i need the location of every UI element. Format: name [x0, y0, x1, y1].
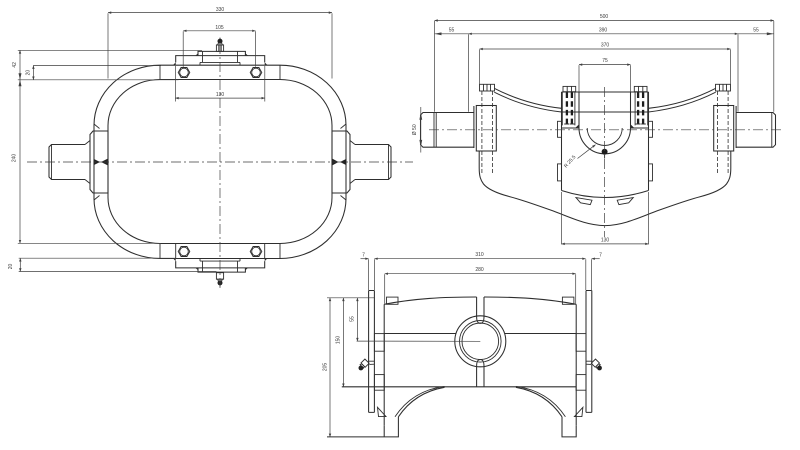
svg-text:Ø 50: Ø 50: [412, 124, 418, 135]
svg-text:75: 75: [602, 58, 608, 64]
svg-text:130: 130: [601, 237, 610, 243]
svg-text:20: 20: [25, 70, 31, 76]
svg-text:105: 105: [215, 25, 224, 31]
svg-text:500: 500: [600, 14, 609, 20]
svg-text:7: 7: [599, 253, 602, 259]
svg-text:370: 370: [601, 43, 610, 49]
svg-text:55: 55: [753, 27, 759, 33]
svg-text:205: 205: [322, 363, 328, 372]
svg-text:130: 130: [216, 92, 225, 98]
svg-text:7: 7: [362, 253, 365, 259]
svg-text:42: 42: [12, 62, 18, 68]
svg-text:20: 20: [8, 264, 14, 270]
svg-text:55: 55: [449, 27, 455, 33]
svg-text:55: 55: [350, 316, 356, 322]
svg-text:240: 240: [11, 154, 17, 163]
svg-text:150: 150: [336, 336, 342, 345]
svg-text:310: 310: [475, 252, 484, 258]
svg-text:390: 390: [599, 27, 608, 33]
svg-text:330: 330: [216, 7, 225, 13]
svg-text:280: 280: [475, 267, 484, 273]
